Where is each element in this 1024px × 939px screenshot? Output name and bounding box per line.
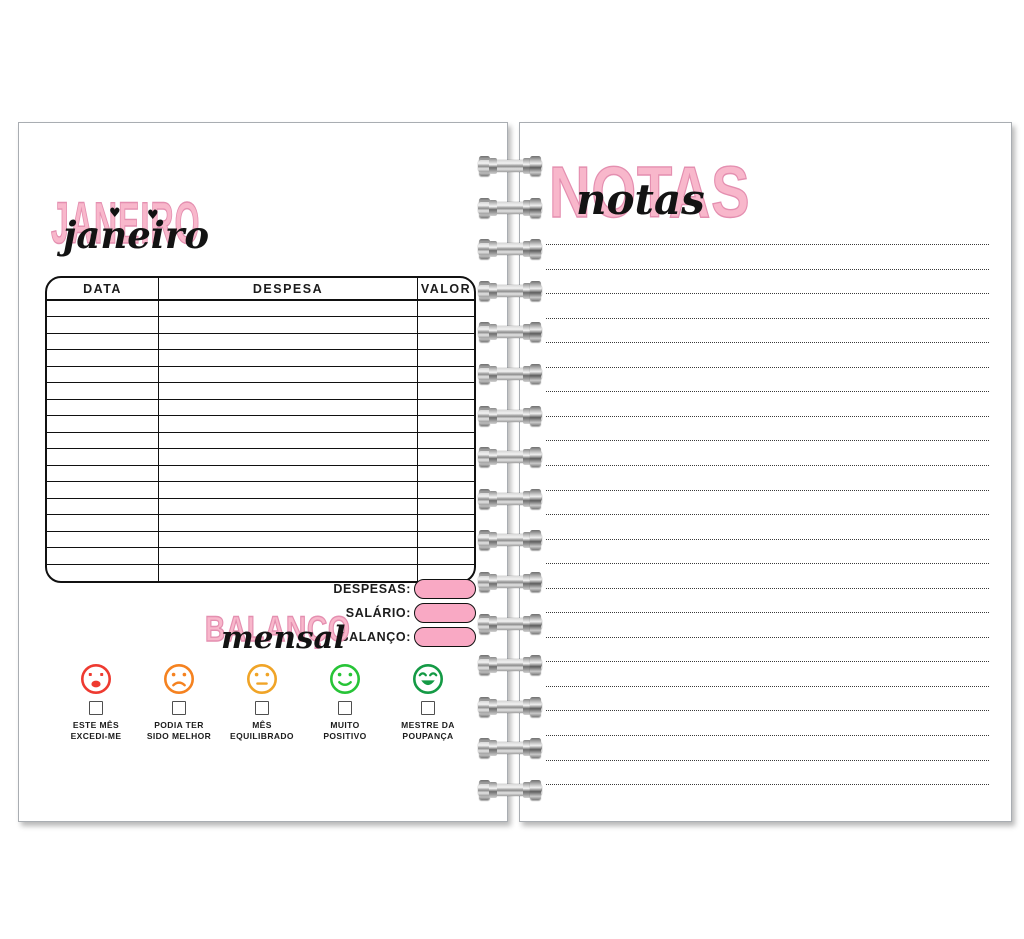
expense-cell[interactable]	[159, 317, 418, 333]
spiral-coil	[477, 532, 543, 548]
spiral-coil	[477, 782, 543, 798]
expense-cell[interactable]	[418, 482, 474, 498]
expense-cell[interactable]	[47, 400, 159, 416]
expense-cell[interactable]	[47, 301, 159, 317]
spiral-coil	[477, 657, 543, 673]
spiral-coil	[477, 241, 543, 257]
note-line[interactable]	[546, 784, 989, 785]
expense-cell[interactable]	[47, 433, 159, 449]
expense-cell[interactable]	[418, 367, 474, 383]
expense-cell[interactable]	[159, 433, 418, 449]
mood-checkbox[interactable]	[338, 701, 352, 715]
expense-cell[interactable]	[418, 334, 474, 350]
expense-cell[interactable]	[418, 433, 474, 449]
mood-label: MUITOPOSITIVO	[323, 720, 366, 741]
spiral-coil	[477, 158, 543, 174]
expense-cell[interactable]	[47, 383, 159, 399]
note-line[interactable]	[546, 539, 989, 540]
note-line[interactable]	[546, 416, 989, 417]
month-title: JANEIRO ♥ ♥ janeiro	[51, 195, 271, 275]
spiral-coil	[477, 699, 543, 715]
frown-face-icon	[162, 662, 196, 696]
notes-title: NOTAS notas	[549, 157, 789, 237]
mood-label: MESTRE DAPOUPANÇA	[401, 720, 455, 741]
note-line[interactable]	[546, 661, 989, 662]
month-title-script: janeiro	[63, 217, 209, 254]
expense-cell[interactable]	[47, 350, 159, 366]
expense-cell[interactable]	[418, 350, 474, 366]
mood-checkbox[interactable]	[172, 701, 186, 715]
balance-field-input[interactable]	[414, 579, 476, 599]
note-line[interactable]	[546, 367, 989, 368]
left-page: JANEIRO ♥ ♥ janeiro DATADESPESAVALOR DES…	[18, 122, 508, 822]
note-line[interactable]	[546, 588, 989, 589]
expense-cell[interactable]	[159, 466, 418, 482]
expense-cell[interactable]	[418, 383, 474, 399]
note-line[interactable]	[546, 293, 989, 294]
mood-label: ESTE MÊSEXCEDI-ME	[71, 720, 122, 741]
mood-tracker: ESTE MÊSEXCEDI-MEPODIA TERSIDO MELHORMÊS…	[56, 662, 468, 741]
planner-spread: JANEIRO ♥ ♥ janeiro DATADESPESAVALOR DES…	[0, 0, 1024, 939]
spiral-coil	[477, 574, 543, 590]
note-line[interactable]	[546, 686, 989, 687]
expense-cell[interactable]	[47, 466, 159, 482]
spiral-coil	[477, 283, 543, 299]
spiral-coil	[477, 491, 543, 507]
expense-cell[interactable]	[47, 532, 159, 548]
spiral-coil	[477, 366, 543, 382]
expense-cell[interactable]	[47, 515, 159, 531]
note-line[interactable]	[546, 710, 989, 711]
mood-label: PODIA TERSIDO MELHOR	[147, 720, 211, 741]
note-line[interactable]	[546, 563, 989, 564]
expense-cell[interactable]	[159, 416, 418, 432]
expense-cell[interactable]	[418, 515, 474, 531]
expense-cell[interactable]	[159, 515, 418, 531]
note-line[interactable]	[546, 612, 989, 613]
expense-cell[interactable]	[159, 532, 418, 548]
expense-cell[interactable]	[159, 367, 418, 383]
open-frown-face-icon	[79, 662, 113, 696]
expense-cell[interactable]	[159, 350, 418, 366]
balance-field-row: DESPESAS:	[333, 579, 476, 599]
expense-cell[interactable]	[159, 301, 418, 317]
balance-title-script: mensal	[221, 623, 345, 654]
expense-cell[interactable]	[159, 548, 418, 564]
expense-cell[interactable]	[418, 301, 474, 317]
mood-option-2: MÊSEQUILIBRADO	[222, 662, 302, 741]
mood-option-4: MESTRE DAPOUPANÇA	[388, 662, 468, 741]
mood-checkbox[interactable]	[421, 701, 435, 715]
expense-cell[interactable]	[47, 367, 159, 383]
mood-option-3: MUITOPOSITIVO	[305, 662, 385, 741]
expense-cell[interactable]	[47, 482, 159, 498]
note-line[interactable]	[546, 735, 989, 736]
note-line[interactable]	[546, 391, 989, 392]
expense-cell[interactable]	[418, 416, 474, 432]
column-header-1: DESPESA	[159, 278, 418, 301]
expense-cell[interactable]	[418, 466, 474, 482]
spiral-coil	[477, 449, 543, 465]
expense-cell[interactable]	[418, 532, 474, 548]
note-line[interactable]	[546, 465, 989, 466]
big-smile-face-icon	[411, 662, 445, 696]
mood-option-1: PODIA TERSIDO MELHOR	[139, 662, 219, 741]
mood-label: MÊSEQUILIBRADO	[230, 720, 294, 741]
spiral-coil	[477, 324, 543, 340]
note-line[interactable]	[546, 244, 989, 245]
expense-cell[interactable]	[159, 383, 418, 399]
expense-cell[interactable]	[159, 400, 418, 416]
balance-field-input[interactable]	[414, 603, 476, 623]
column-header-0: DATA	[47, 278, 159, 301]
expense-table: DATADESPESAVALOR	[45, 276, 476, 583]
note-line[interactable]	[546, 342, 989, 343]
right-page: NOTAS notas	[519, 122, 1012, 822]
mood-option-0: ESTE MÊSEXCEDI-ME	[56, 662, 136, 741]
expense-table-grid: DATADESPESAVALOR	[47, 278, 474, 581]
expense-cell[interactable]	[159, 482, 418, 498]
smile-face-icon	[328, 662, 362, 696]
expense-cell[interactable]	[418, 548, 474, 564]
note-line[interactable]	[546, 637, 989, 638]
spiral-coil	[477, 616, 543, 632]
expense-cell[interactable]	[418, 449, 474, 465]
mood-checkbox[interactable]	[255, 701, 269, 715]
neutral-face-icon	[245, 662, 279, 696]
note-line[interactable]	[546, 269, 989, 270]
notes-title-script: notas	[576, 179, 705, 221]
spiral-coil	[477, 408, 543, 424]
note-line[interactable]	[546, 514, 989, 515]
expense-cell[interactable]	[47, 499, 159, 515]
expense-cell[interactable]	[159, 499, 418, 515]
expense-cell[interactable]	[418, 400, 474, 416]
balance-field-label: DESPESAS:	[333, 582, 411, 596]
column-header-2: VALOR	[418, 278, 474, 301]
mood-checkbox[interactable]	[89, 701, 103, 715]
expense-cell[interactable]	[47, 317, 159, 333]
expense-cell[interactable]	[47, 449, 159, 465]
expense-cell[interactable]	[418, 499, 474, 515]
balance-field-input[interactable]	[414, 627, 476, 647]
spiral-coil	[477, 200, 543, 216]
expense-cell[interactable]	[159, 334, 418, 350]
note-line[interactable]	[546, 318, 989, 319]
expense-cell[interactable]	[159, 449, 418, 465]
expense-cell[interactable]	[47, 416, 159, 432]
note-line[interactable]	[546, 760, 989, 761]
spiral-coil	[477, 740, 543, 756]
expense-cell[interactable]	[47, 334, 159, 350]
expense-cell[interactable]	[47, 548, 159, 564]
expense-cell[interactable]	[418, 317, 474, 333]
expense-cell[interactable]	[47, 565, 159, 581]
note-line[interactable]	[546, 440, 989, 441]
note-line[interactable]	[546, 490, 989, 491]
